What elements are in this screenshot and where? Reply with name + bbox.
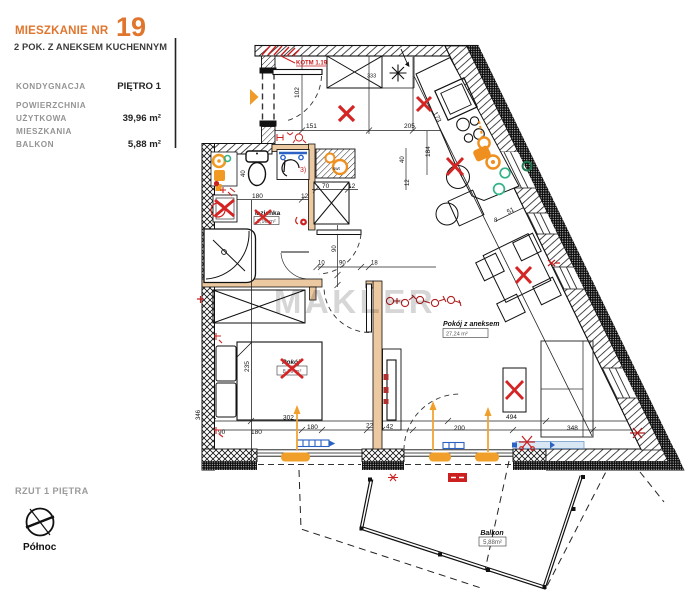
svg-text:184: 184 (425, 146, 432, 157)
svg-text:235: 235 (244, 361, 251, 372)
svg-text:42: 42 (386, 424, 394, 431)
svg-text:5,88m²: 5,88m² (483, 540, 502, 546)
svg-text:RZUT 1 PIĘTRA: RZUT 1 PIĘTRA (15, 486, 89, 496)
svg-text:333: 333 (367, 74, 376, 80)
svg-text:3): 3) (300, 167, 306, 174)
svg-text:40: 40 (241, 170, 247, 177)
svg-text:12: 12 (405, 179, 411, 186)
svg-text:180: 180 (307, 424, 318, 431)
svg-text:Północ: Północ (23, 542, 57, 553)
svg-text:POWIERZCHNIA: POWIERZCHNIA (16, 101, 86, 110)
svg-text:494: 494 (506, 414, 517, 421)
svg-text:MIESZKANIE NR: MIESZKANIE NR (15, 25, 109, 37)
svg-text:19: 19 (116, 12, 146, 42)
svg-text:27,24 m²: 27,24 m² (446, 332, 468, 338)
svg-text:MAKLER: MAKLER (274, 283, 436, 320)
svg-text:10: 10 (318, 261, 325, 267)
svg-text:205: 205 (404, 123, 415, 130)
svg-text:MIESZKANIA: MIESZKANIA (16, 127, 72, 136)
svg-text:90: 90 (332, 245, 338, 252)
svg-text:18: 18 (371, 261, 378, 267)
svg-text:180: 180 (252, 193, 263, 200)
svg-text:102: 102 (294, 87, 301, 98)
svg-text:swt: swt (333, 166, 340, 171)
svg-text:Balkon: Balkon (480, 530, 503, 537)
svg-text:70: 70 (322, 183, 330, 190)
svg-text:PIĘTRO 1: PIĘTRO 1 (117, 81, 161, 92)
svg-text:39,96 m²: 39,96 m² (123, 113, 161, 124)
svg-text:180: 180 (251, 429, 262, 436)
svg-text:KONDYGNACJA: KONDYGNACJA (16, 82, 86, 91)
svg-text:2 POK. Z ANEKSEM KUCHENNYM: 2 POK. Z ANEKSEM KUCHENNYM (14, 42, 167, 52)
svg-text:22: 22 (366, 423, 374, 430)
svg-text:200: 200 (454, 425, 465, 432)
svg-text:40: 40 (400, 156, 406, 163)
svg-text:346: 346 (196, 409, 202, 420)
svg-text:5,88 m²: 5,88 m² (128, 139, 161, 150)
svg-text:151: 151 (306, 123, 317, 130)
svg-text:348: 348 (567, 425, 578, 432)
svg-text:BALKON: BALKON (16, 140, 54, 149)
svg-text:12: 12 (348, 183, 356, 190)
svg-text:UŻYTKOWA: UŻYTKOWA (16, 113, 67, 123)
svg-text:Pokój z aneksem: Pokój z aneksem (443, 321, 499, 328)
svg-text:12: 12 (301, 193, 309, 200)
